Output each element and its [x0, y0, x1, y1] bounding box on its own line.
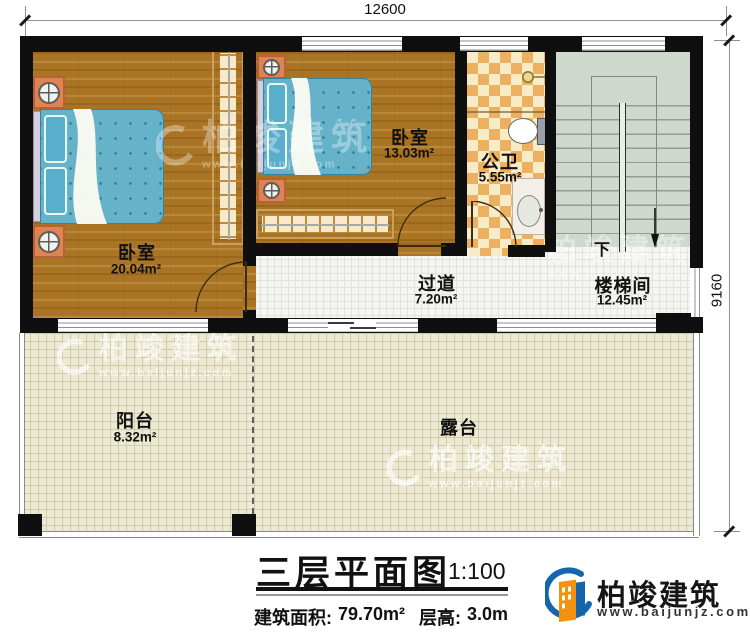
column	[18, 514, 42, 536]
wall	[690, 36, 703, 268]
floor-area-value: 79.70m²	[338, 604, 405, 630]
dimension-line-top	[25, 20, 727, 21]
sliding-leaf	[328, 322, 354, 324]
window	[497, 319, 656, 332]
lamp-icon	[38, 231, 60, 253]
sink-basin	[517, 195, 541, 227]
title-underline-thin	[256, 594, 508, 596]
terrace-right-parapet	[693, 331, 700, 536]
wall	[455, 36, 467, 256]
floor-height-label: 层高:	[419, 604, 461, 630]
door-bedroom-1	[195, 259, 248, 314]
building-swoosh-icon	[545, 564, 593, 628]
wall	[545, 36, 556, 252]
wall	[20, 36, 33, 333]
window	[58, 319, 208, 332]
sliding-door-symbol	[328, 320, 376, 331]
room-area-stairwell: 12.45m²	[597, 293, 647, 308]
balcony-left-parapet	[19, 333, 25, 535]
floor-area-label: 建筑面积:	[254, 604, 332, 630]
toilet	[508, 117, 546, 146]
pillow	[267, 83, 287, 124]
bed-sheet	[63, 109, 109, 224]
lamp-icon	[263, 59, 280, 76]
nightstand	[257, 55, 286, 79]
door-bathroom	[470, 201, 518, 249]
nightstand	[33, 76, 65, 109]
company-website: www.baijunjz.com	[597, 604, 750, 619]
floor-height-value: 3.0m	[467, 604, 508, 630]
pillow	[44, 167, 67, 215]
stair-railing	[619, 103, 626, 252]
window	[460, 37, 528, 51]
nightstand	[33, 225, 65, 258]
shower-head-icon	[520, 68, 546, 86]
nightstand	[257, 178, 286, 203]
bathroom-zone-divider	[467, 111, 545, 113]
pillow	[267, 128, 287, 169]
room-label-terrace: 露台	[440, 414, 478, 440]
stair-down-label: 下	[594, 236, 610, 260]
bed-bedroom-1	[33, 109, 164, 224]
floor-plan-canvas: 柏竣建筑 www.baijunjz.com 柏竣建筑 www.baijunjz.…	[0, 0, 750, 635]
room-area-hallway: 7.20m²	[415, 292, 458, 307]
sliding-leaf	[350, 327, 376, 329]
column	[232, 514, 256, 536]
sink-faucet	[539, 208, 543, 212]
lamp-icon	[38, 82, 60, 104]
window	[691, 268, 703, 317]
toilet-bowl	[508, 118, 538, 144]
dimension-width: 12600	[330, 1, 440, 18]
down-arrow-icon	[647, 208, 663, 250]
bed-bedroom-2	[257, 78, 372, 175]
wall	[243, 243, 398, 256]
window	[582, 37, 665, 51]
room-area-balcony: 8.32m²	[114, 430, 157, 445]
plan-info: 建筑面积: 79.70m² 层高: 3.0m	[238, 604, 524, 630]
wardrobe-bedroom-2	[256, 209, 394, 239]
dimension-depth: 9160	[709, 261, 726, 321]
room-area-bedroom-1: 20.04m²	[111, 262, 161, 277]
balcony-terrace-divider	[252, 336, 254, 514]
bed-sheet	[283, 78, 323, 175]
window	[302, 37, 402, 51]
room-area-bedroom-2: 13.03m²	[384, 146, 434, 161]
dimension-line-right	[729, 40, 730, 532]
door-bedroom-2	[396, 196, 448, 248]
bathroom-door-threshold	[469, 248, 508, 256]
room-area-bathroom: 5.55m²	[479, 170, 522, 185]
outdoor-bottom-parapet	[19, 531, 699, 538]
wardrobe-bedroom-1	[212, 47, 244, 245]
plan-scale: 1:100	[448, 558, 506, 585]
wall	[243, 36, 256, 266]
lamp-icon	[263, 182, 280, 199]
pillow	[44, 115, 67, 163]
title-underline-thick	[256, 587, 508, 591]
